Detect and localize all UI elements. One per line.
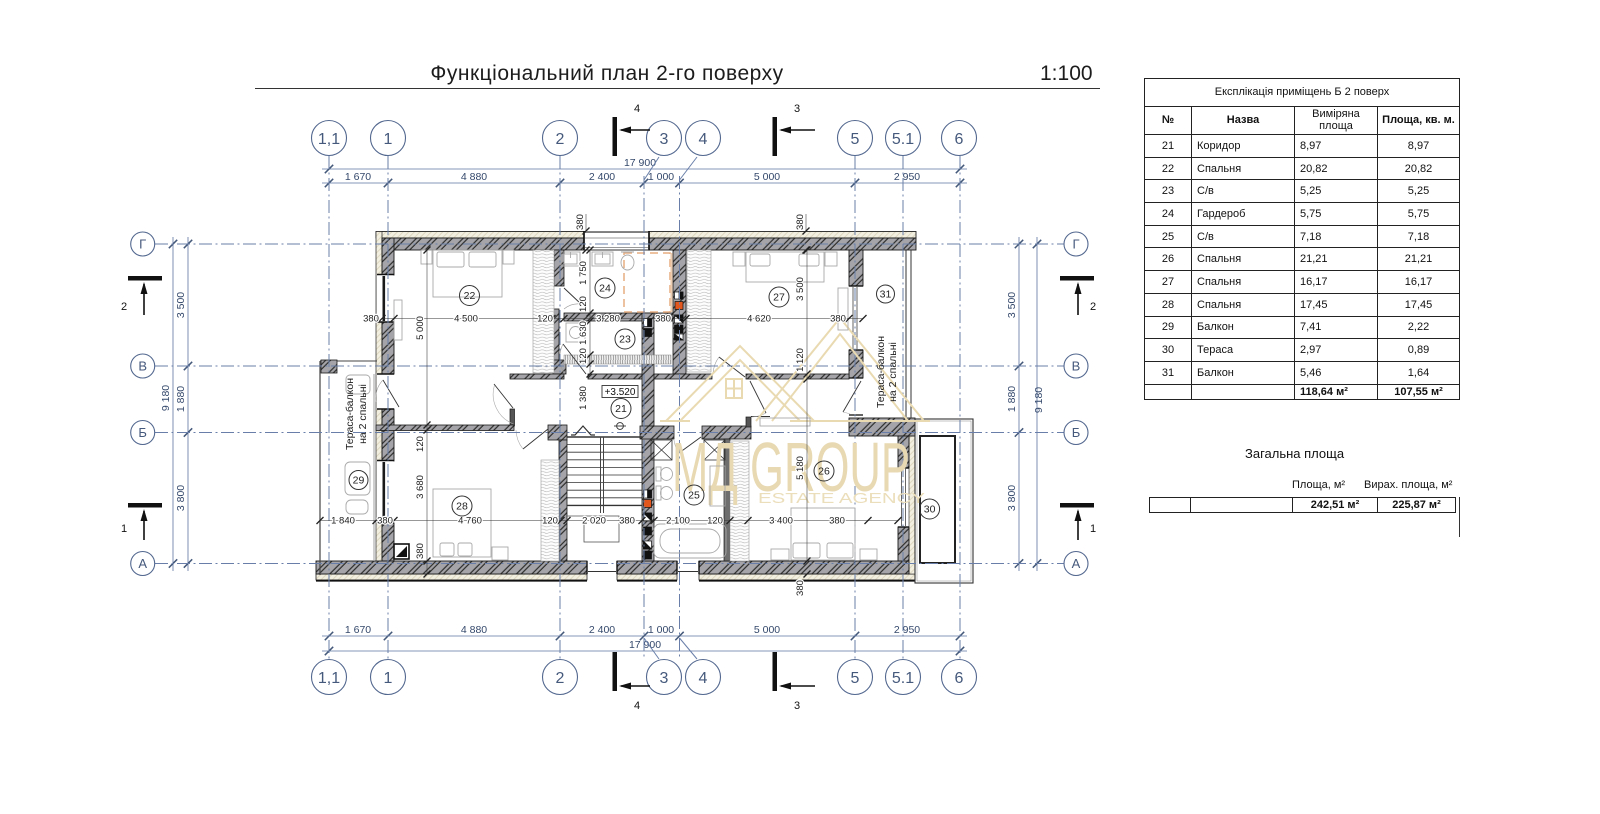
svg-text:Г: Г bbox=[1072, 237, 1079, 252]
svg-text:А: А bbox=[138, 556, 147, 571]
svg-text:380: 380 bbox=[795, 580, 806, 596]
svg-text:1 670: 1 670 bbox=[345, 171, 371, 183]
svg-text:2 100: 2 100 bbox=[666, 516, 690, 527]
svg-text:120: 120 bbox=[415, 436, 426, 452]
svg-text:380: 380 bbox=[830, 314, 846, 325]
svg-text:4 500: 4 500 bbox=[454, 314, 478, 325]
svg-text:Г: Г bbox=[139, 237, 146, 252]
svg-text:5 000: 5 000 bbox=[754, 171, 780, 183]
svg-text:Тераса-балкон: Тераса-балкон bbox=[344, 378, 356, 450]
svg-text:1 630: 1 630 bbox=[578, 321, 589, 345]
svg-text:2 400: 2 400 bbox=[589, 171, 615, 183]
svg-text:6: 6 bbox=[955, 670, 964, 687]
svg-text:на 2 спальні: на 2 спальні bbox=[887, 342, 899, 402]
svg-text:1 380: 1 380 bbox=[578, 386, 589, 410]
svg-text:Б: Б bbox=[1072, 425, 1081, 440]
svg-text:29: 29 bbox=[353, 475, 365, 487]
svg-text:2 020: 2 020 bbox=[582, 516, 606, 527]
svg-text:120: 120 bbox=[537, 314, 553, 325]
svg-text:1 880: 1 880 bbox=[1006, 386, 1018, 412]
svg-text:1 000: 1 000 bbox=[648, 171, 674, 183]
svg-text:1 120: 1 120 bbox=[795, 348, 806, 372]
svg-text:2 950: 2 950 bbox=[894, 624, 920, 636]
svg-text:3 500: 3 500 bbox=[795, 277, 806, 301]
svg-text:4 760: 4 760 bbox=[458, 516, 482, 527]
svg-text:17 900: 17 900 bbox=[629, 639, 661, 651]
svg-text:24: 24 bbox=[599, 283, 611, 295]
svg-text:380: 380 bbox=[363, 314, 379, 325]
svg-text:4: 4 bbox=[634, 103, 640, 115]
svg-text:25: 25 bbox=[688, 490, 700, 502]
svg-text:ESTATE AGENCY: ESTATE AGENCY bbox=[758, 491, 925, 507]
svg-text:5.1: 5.1 bbox=[892, 670, 914, 687]
svg-text:2: 2 bbox=[121, 301, 127, 313]
svg-text:120: 120 bbox=[578, 296, 589, 312]
svg-text:А: А bbox=[1072, 556, 1081, 571]
svg-text:3 800: 3 800 bbox=[1006, 485, 1018, 511]
svg-text:Б: Б bbox=[138, 425, 147, 440]
svg-text:26: 26 bbox=[818, 466, 830, 478]
svg-text:1: 1 bbox=[121, 523, 127, 535]
svg-text:5.1: 5.1 bbox=[892, 131, 914, 148]
svg-text:4: 4 bbox=[634, 700, 640, 712]
svg-text:27: 27 bbox=[773, 292, 785, 304]
svg-text:2: 2 bbox=[556, 131, 565, 148]
svg-text:В: В bbox=[138, 359, 147, 374]
svg-text:1,1: 1,1 bbox=[318, 670, 340, 687]
svg-text:380: 380 bbox=[575, 214, 586, 230]
svg-text:1: 1 bbox=[384, 131, 393, 148]
svg-text:1 750: 1 750 bbox=[578, 261, 589, 285]
svg-text:1: 1 bbox=[1090, 523, 1096, 535]
svg-text:380: 380 bbox=[377, 516, 393, 527]
svg-text:2 950: 2 950 bbox=[894, 171, 920, 183]
svg-text:1 880: 1 880 bbox=[175, 386, 187, 412]
svg-text:2 400: 2 400 bbox=[589, 624, 615, 636]
svg-text:28: 28 bbox=[456, 501, 468, 513]
svg-text:2: 2 bbox=[556, 670, 565, 687]
svg-text:4 620: 4 620 bbox=[747, 314, 771, 325]
svg-text:6: 6 bbox=[955, 131, 964, 148]
svg-text:9 180: 9 180 bbox=[1033, 387, 1045, 413]
svg-text:+3.520: +3.520 bbox=[605, 387, 636, 398]
svg-text:3 500: 3 500 bbox=[1006, 292, 1018, 318]
svg-text:380: 380 bbox=[655, 314, 671, 325]
svg-text:120: 120 bbox=[578, 348, 589, 364]
svg-text:5 000: 5 000 bbox=[754, 624, 780, 636]
svg-text:17 900: 17 900 bbox=[624, 157, 656, 169]
svg-text:1 840: 1 840 bbox=[331, 516, 355, 527]
svg-text:31: 31 bbox=[880, 289, 892, 301]
svg-text:380: 380 bbox=[619, 516, 635, 527]
svg-text:1: 1 bbox=[384, 670, 393, 687]
svg-text:380: 380 bbox=[829, 516, 845, 527]
svg-text:3: 3 bbox=[660, 131, 669, 148]
svg-text:4: 4 bbox=[699, 131, 708, 148]
svg-text:В: В bbox=[1072, 359, 1081, 374]
svg-text:1 000: 1 000 bbox=[648, 624, 674, 636]
svg-text:21: 21 bbox=[615, 403, 627, 415]
svg-text:3 800: 3 800 bbox=[175, 485, 187, 511]
svg-text:5 180: 5 180 bbox=[795, 456, 806, 480]
svg-text:30: 30 bbox=[924, 504, 936, 516]
svg-text:1 670: 1 670 bbox=[345, 624, 371, 636]
svg-text:23: 23 bbox=[619, 334, 631, 346]
svg-text:3: 3 bbox=[794, 103, 800, 115]
svg-text:3: 3 bbox=[660, 670, 669, 687]
svg-text:на 2 спальні: на 2 спальні bbox=[357, 384, 369, 444]
svg-text:380: 380 bbox=[795, 214, 806, 230]
svg-text:4 880: 4 880 bbox=[461, 624, 487, 636]
svg-text:4: 4 bbox=[699, 670, 708, 687]
svg-text:380: 380 bbox=[415, 543, 426, 559]
svg-text:3 680: 3 680 bbox=[415, 475, 426, 499]
svg-text:3 400: 3 400 bbox=[769, 516, 793, 527]
svg-text:4 880: 4 880 bbox=[461, 171, 487, 183]
svg-text:120: 120 bbox=[542, 516, 558, 527]
svg-text:22: 22 bbox=[464, 290, 476, 302]
svg-text:3: 3 bbox=[794, 700, 800, 712]
svg-text:5 000: 5 000 bbox=[415, 316, 426, 340]
svg-text:3 280: 3 280 bbox=[596, 314, 620, 325]
svg-text:2: 2 bbox=[1090, 301, 1096, 313]
svg-text:1,1: 1,1 bbox=[318, 131, 340, 148]
svg-text:Тераса-балкон: Тераса-балкон bbox=[875, 336, 887, 408]
svg-text:120: 120 bbox=[707, 516, 723, 527]
svg-text:3 500: 3 500 bbox=[175, 292, 187, 318]
svg-text:5: 5 bbox=[851, 670, 860, 687]
svg-text:5: 5 bbox=[851, 131, 860, 148]
svg-text:9 180: 9 180 bbox=[160, 385, 172, 411]
